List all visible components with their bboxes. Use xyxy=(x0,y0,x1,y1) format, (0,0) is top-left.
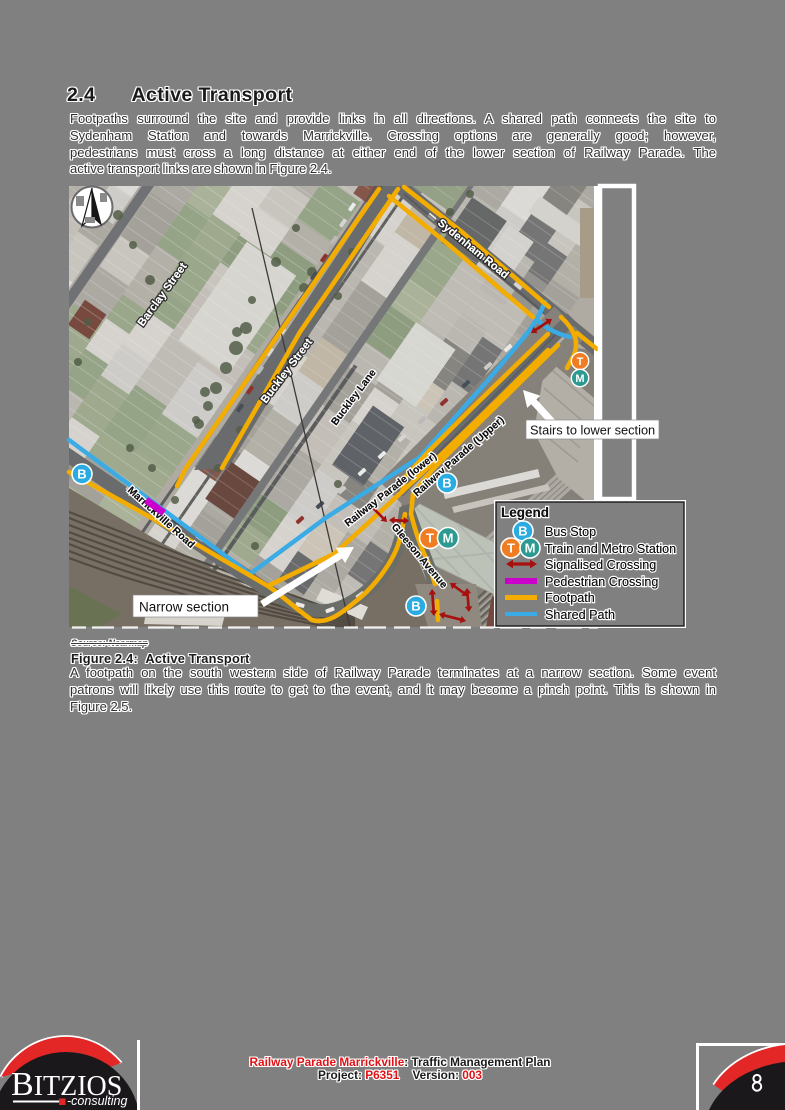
svg-text:M: M xyxy=(525,541,536,556)
svg-text:M: M xyxy=(443,531,454,546)
svg-text:Shared Path: Shared Path xyxy=(545,608,615,622)
svg-text:Signalised Crossing: Signalised Crossing xyxy=(545,558,656,572)
svg-text:T: T xyxy=(426,531,434,546)
svg-text:Footpath: Footpath xyxy=(545,591,595,605)
svg-text:Legend: Legend xyxy=(501,505,549,520)
svg-text:B: B xyxy=(518,524,527,539)
svg-text:T: T xyxy=(507,541,515,556)
svg-text:Pedestrian Crossing: Pedestrian Crossing xyxy=(545,575,658,589)
svg-text:Train and Metro Station: Train and Metro Station xyxy=(545,542,676,556)
svg-text:B: B xyxy=(77,467,86,482)
svg-text:Stairs to lower section: Stairs to lower section xyxy=(530,423,655,438)
svg-text:B: B xyxy=(442,476,451,491)
svg-text:M: M xyxy=(575,373,584,385)
svg-text:B: B xyxy=(411,599,420,614)
svg-text:T: T xyxy=(577,356,584,368)
svg-text:Narrow section: Narrow section xyxy=(139,600,229,615)
svg-text:Bus Stop: Bus Stop xyxy=(545,525,596,539)
svg-text:-consulting: -consulting xyxy=(67,1094,127,1108)
